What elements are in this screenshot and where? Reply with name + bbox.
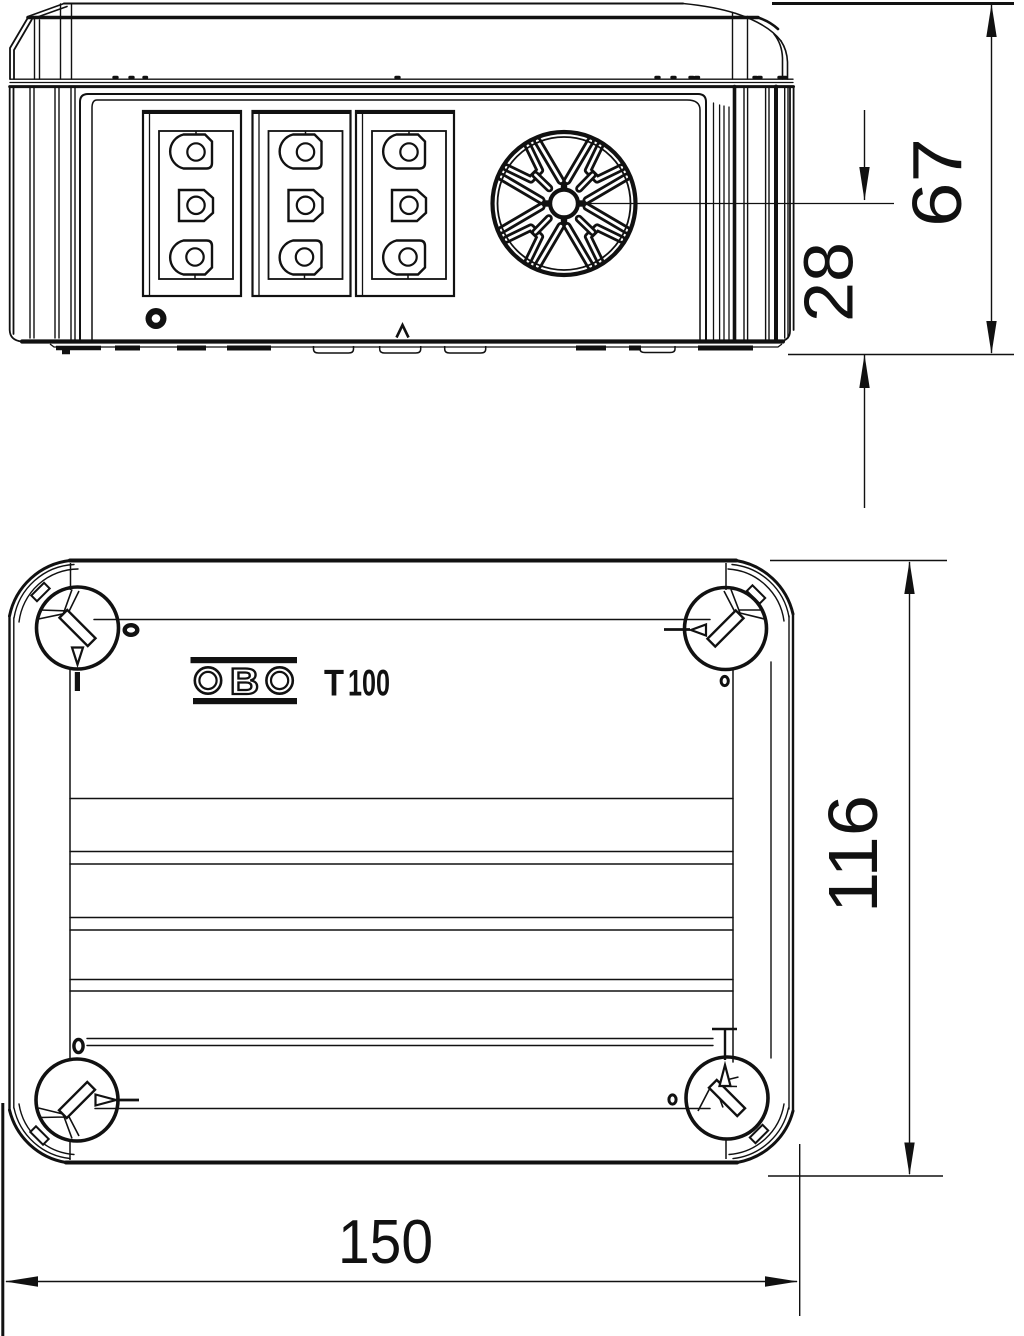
svg-text:100: 100	[348, 663, 390, 704]
svg-text:150: 150	[338, 1208, 433, 1277]
svg-text:B: B	[230, 661, 259, 702]
svg-text:28: 28	[790, 242, 868, 322]
svg-text:116: 116	[814, 795, 892, 913]
svg-text:T: T	[324, 663, 344, 704]
svg-text:67: 67	[898, 138, 976, 227]
